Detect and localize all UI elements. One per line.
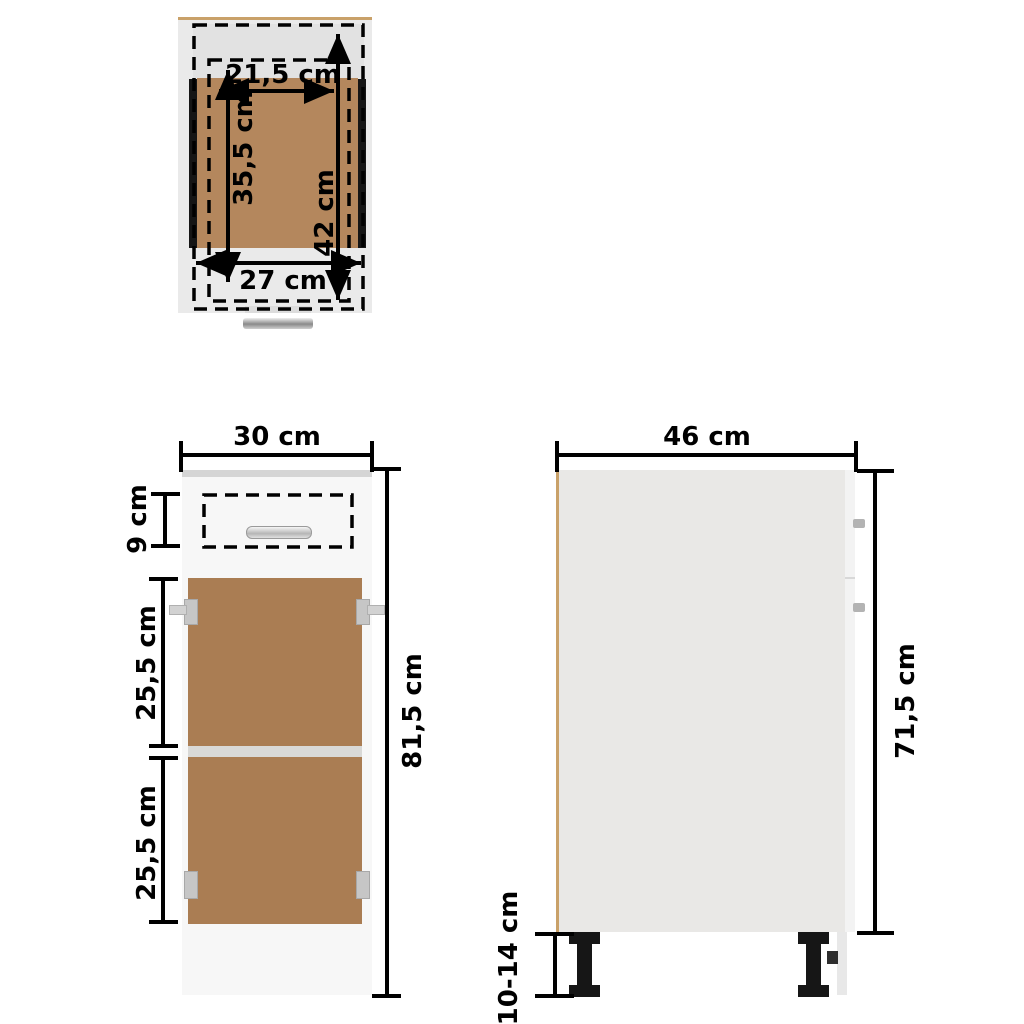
label-drawer-outer-depth: 42 cm [312,169,338,257]
dimension-diagram: 21,5 cm 35,5 cm 42 cm 27 cm 30 cm 9 cm 2… [0,0,1024,1024]
label-drawer-inner-depth: 35,5 cm [231,90,257,206]
bracket-drawer-height-9 [151,494,180,546]
label-leg-height: 10-14 cm [496,891,522,1024]
label-upper-section-height: 25,5 cm [134,605,160,721]
label-drawer-outer-width: 27 cm [239,268,327,294]
frontview-drawer-dashed-outline [204,495,352,547]
bracket-body-height-71-5 [857,471,894,933]
label-lower-section-height: 25,5 cm [134,785,160,901]
label-total-height: 81,5 cm [400,653,426,769]
bracket-total-height-81-5 [372,469,401,996]
label-drawer-height: 9 cm [125,484,151,554]
label-body-height: 71,5 cm [893,643,919,759]
label-cabinet-depth: 46 cm [663,424,751,450]
bracket-leg-height-10-14 [535,934,574,996]
label-cabinet-width: 30 cm [233,424,321,450]
label-drawer-inner-width: 21,5 cm [225,62,341,88]
